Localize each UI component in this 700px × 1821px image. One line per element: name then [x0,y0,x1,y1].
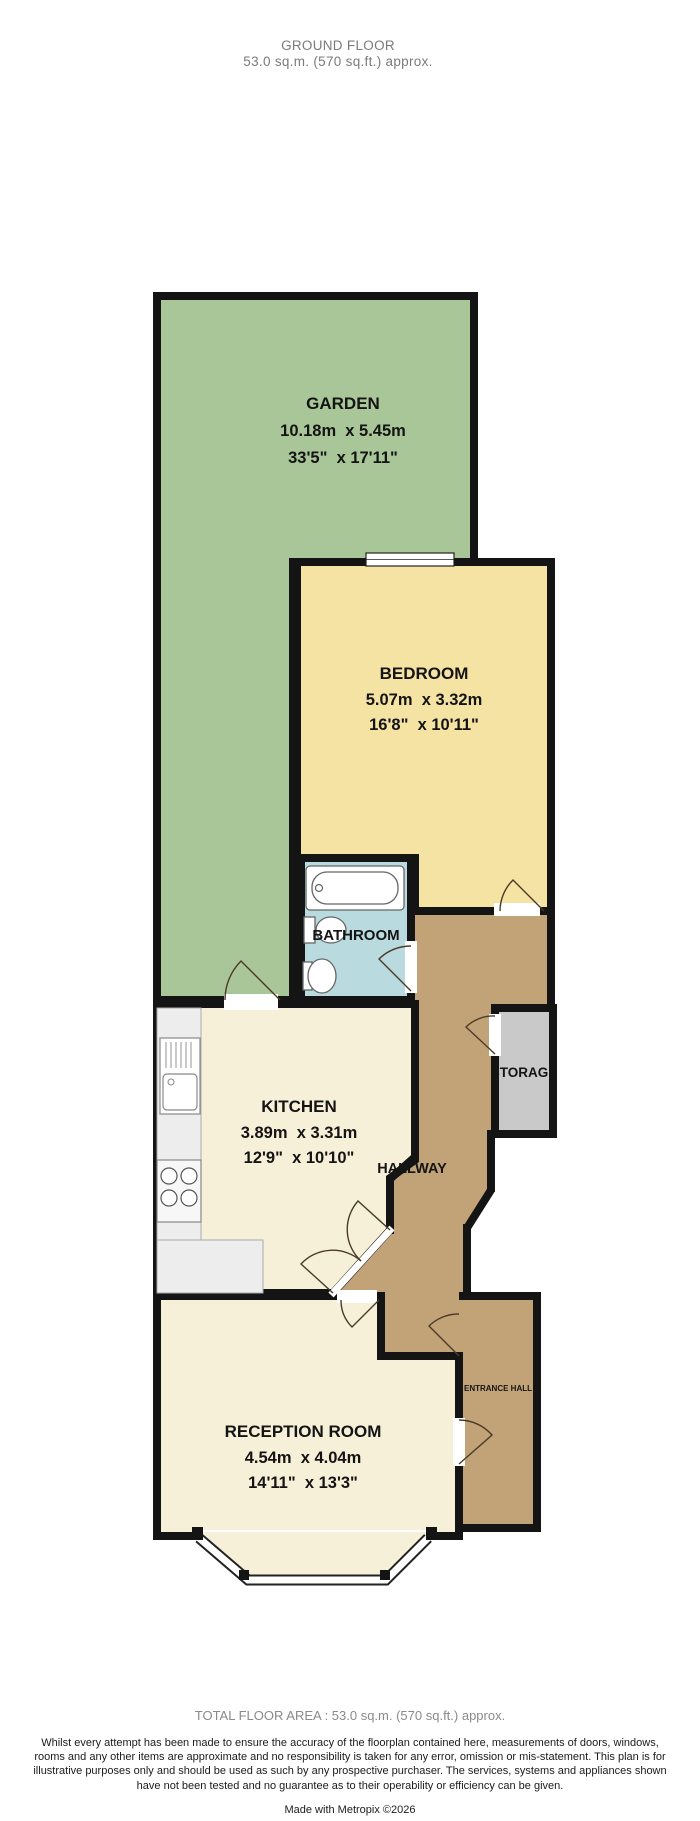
reception-imperial: 14'11" x 13'3" [248,1474,358,1492]
entrance-hall-label: ENTRANCE HALL [464,1384,532,1393]
bedroom-imperial: 16'8" x 10'11" [369,716,479,734]
kitchen-sink [160,1038,200,1114]
bedroom-window [366,553,454,566]
reception-label: RECEPTION ROOM [225,1422,382,1441]
credit-text: Made with Metropix ©2026 [0,1804,700,1816]
kitchen-imperial: 12'9" x 10'10" [244,1149,355,1167]
bay-window [192,1527,437,1580]
floorplan-page: GROUND FLOOR 53.0 sq.m. (570 sq.ft.) app… [0,0,700,1821]
garden-imperial: 33'5" x 17'11" [288,449,398,467]
storage-label: STORAGE [491,1065,558,1080]
bathroom-sink [303,959,336,993]
disclaimer-text: Whilst every attempt has been made to en… [26,1736,674,1793]
bathtub [306,866,404,910]
reception-metric: 4.54m x 4.04m [245,1449,362,1467]
kitchen-metric: 3.89m x 3.31m [241,1124,358,1142]
garden-label: GARDEN [306,394,380,413]
bedroom-metric: 5.07m x 3.32m [366,691,483,709]
kitchen-label: KITCHEN [261,1097,337,1116]
floorplan-drawing: GARDEN 10.18m x 5.45m 33'5" x 17'11" BED… [0,0,700,1821]
kitchen-hob [157,1160,201,1222]
bathroom-label: BATHROOM [312,927,399,944]
garden-metric: 10.18m x 5.45m [280,422,406,440]
total-floor-area: TOTAL FLOOR AREA : 53.0 sq.m. (570 sq.ft… [0,1708,700,1723]
bedroom-label: BEDROOM [380,664,469,683]
hallway-label: HALLWAY [377,1161,447,1177]
